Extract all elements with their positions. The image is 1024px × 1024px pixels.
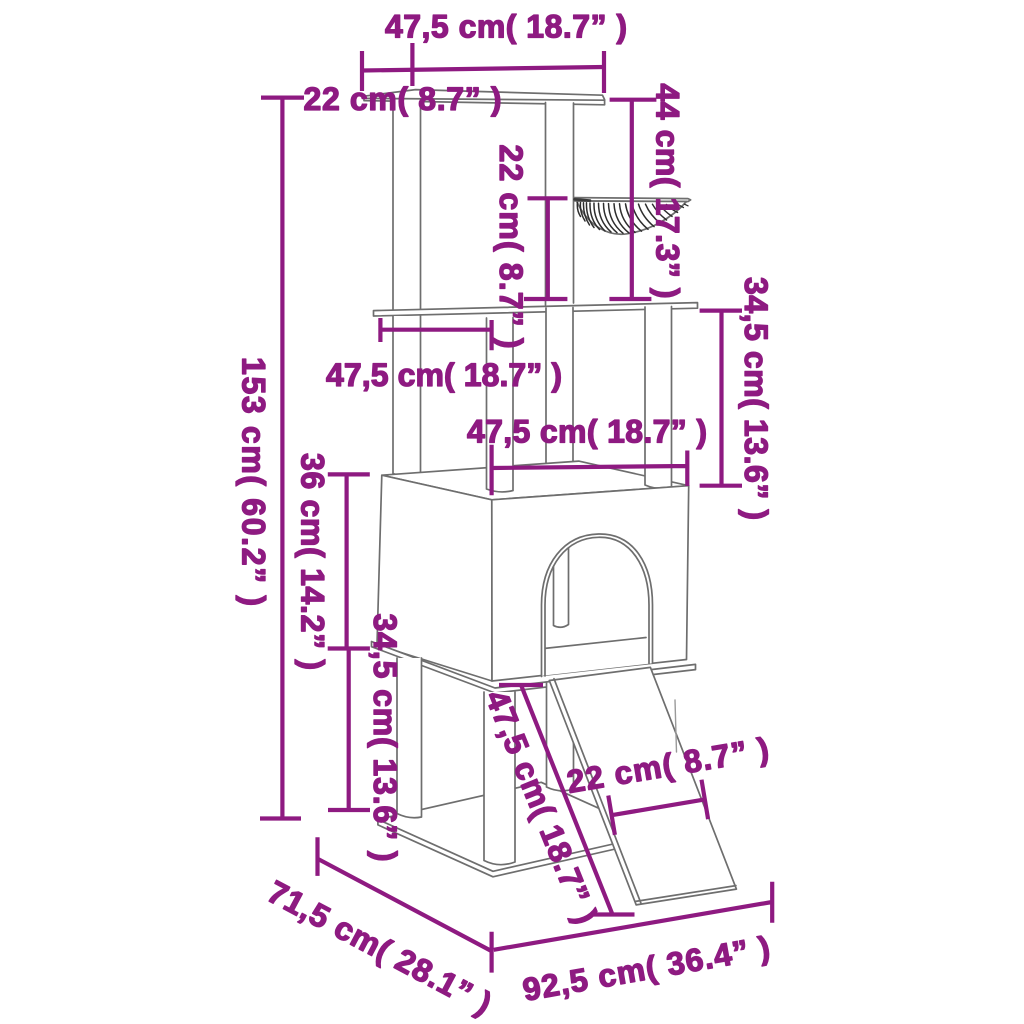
svg-text:47,5 cm( 18.7” ): 47,5 cm( 18.7” ) [326,357,562,393]
svg-text:22 cm( 8.7” ): 22 cm( 8.7” ) [493,145,529,349]
svg-text:71,5 cm( 28.1” ): 71,5 cm( 28.1” ) [262,873,498,1021]
svg-text:47,5 cm( 18.7” ): 47,5 cm( 18.7” ) [385,9,627,45]
svg-text:47,5 cm( 18.7” ): 47,5 cm( 18.7” ) [467,414,707,450]
svg-text:36 cm( 14.2” ): 36 cm( 14.2” ) [295,453,331,670]
svg-text:22 cm( 8.7” ): 22 cm( 8.7” ) [304,81,502,117]
svg-text:34,5 cm( 13.6” ): 34,5 cm( 13.6” ) [738,277,774,520]
svg-text:34,5 cm( 13.6” ): 34,5 cm( 13.6” ) [367,614,403,862]
svg-text:153 cm( 60.2” ): 153 cm( 60.2” ) [236,357,272,606]
svg-text:44 cm( 17.3” ): 44 cm( 17.3” ) [650,84,686,299]
